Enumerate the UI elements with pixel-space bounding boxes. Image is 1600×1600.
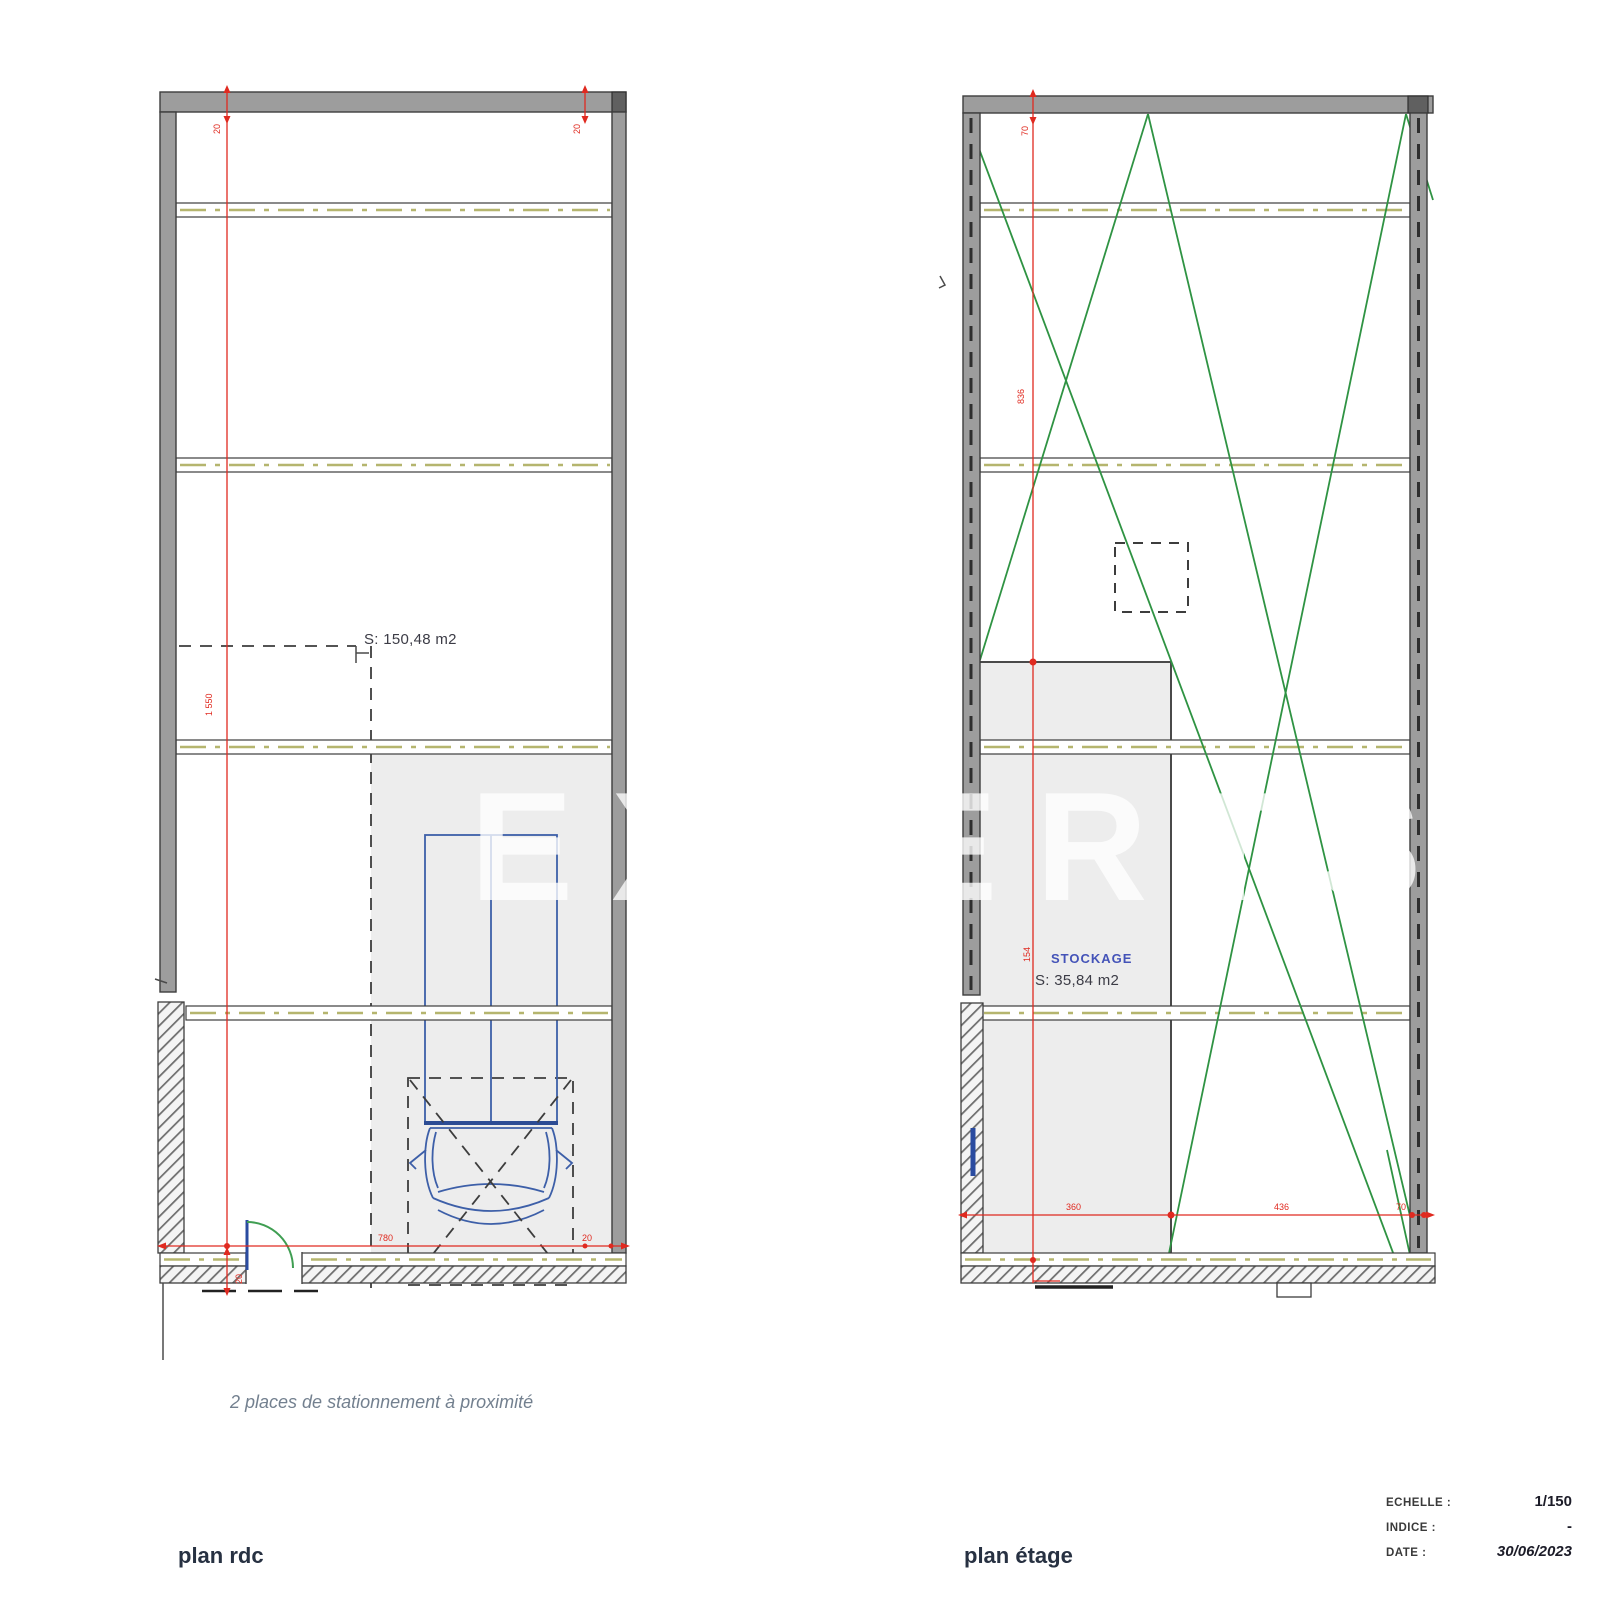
etage-dim-upper-height: 836 <box>1016 389 1026 404</box>
etage-plan-title: plan étage <box>964 1543 1073 1569</box>
rdc-dim-door: 20 <box>234 1274 244 1284</box>
stockage-room-label: STOCKAGE <box>1051 951 1132 966</box>
rdc-wall-left <box>160 112 176 992</box>
etage-dim-lower-height: 154 <box>1022 947 1032 962</box>
etage-hatch-opening-dashed <box>1115 543 1188 612</box>
rdc-wall-top <box>160 92 626 112</box>
etage-bottom-notch <box>1277 1283 1311 1297</box>
rdc-dim-top-right: 20 <box>572 124 582 134</box>
rdc-dim-bottom-width: 780 <box>378 1233 393 1243</box>
etage-wall-bottom-hatched <box>961 1266 1435 1283</box>
date-label: DATE : <box>1386 1547 1426 1559</box>
rdc-area-label: S: 150,48 m2 <box>364 631 457 648</box>
rdc-parking-note: 2 places de stationnement à proximité <box>230 1392 533 1413</box>
indice-label: INDICE : <box>1386 1522 1436 1534</box>
etage-dim-bottom-right: 70 <box>1396 1202 1406 1212</box>
etage-area-label: S: 35,84 m2 <box>1035 972 1119 989</box>
etage-wall-left <box>963 113 980 995</box>
date-value: 30/06/2023 <box>1440 1543 1572 1560</box>
etage-dim-top: 70 <box>1020 126 1030 136</box>
etage-dim-bottom-left: 360 <box>1066 1202 1081 1212</box>
drawing-sheet: EXPERTS S: 150,48 m2 2 places de station… <box>0 0 1600 1600</box>
indice-value: - <box>1440 1518 1572 1535</box>
rdc-dim-top-left: 20 <box>212 124 222 134</box>
rdc-dim-bottom-right: 20 <box>582 1233 592 1243</box>
rdc-plan-title: plan rdc <box>178 1543 264 1569</box>
floor-plan-rdc <box>155 85 630 1360</box>
etage-dim-bottom-mid: 436 <box>1274 1202 1289 1212</box>
scale-value: 1/150 <box>1440 1493 1572 1510</box>
etage-exterior-mark <box>939 276 945 288</box>
rdc-wall-left-hatched <box>158 1002 184 1253</box>
etage-wall-corner <box>1408 96 1428 113</box>
rdc-wall-corner <box>612 92 626 112</box>
floor-plan-etage <box>939 89 1435 1297</box>
rdc-wall-bottom-hatched <box>160 1266 626 1283</box>
floor-plans-drawing <box>0 0 1600 1600</box>
rdc-wall-right <box>612 112 626 1253</box>
rdc-dim-left-height: 1 550 <box>204 693 214 716</box>
